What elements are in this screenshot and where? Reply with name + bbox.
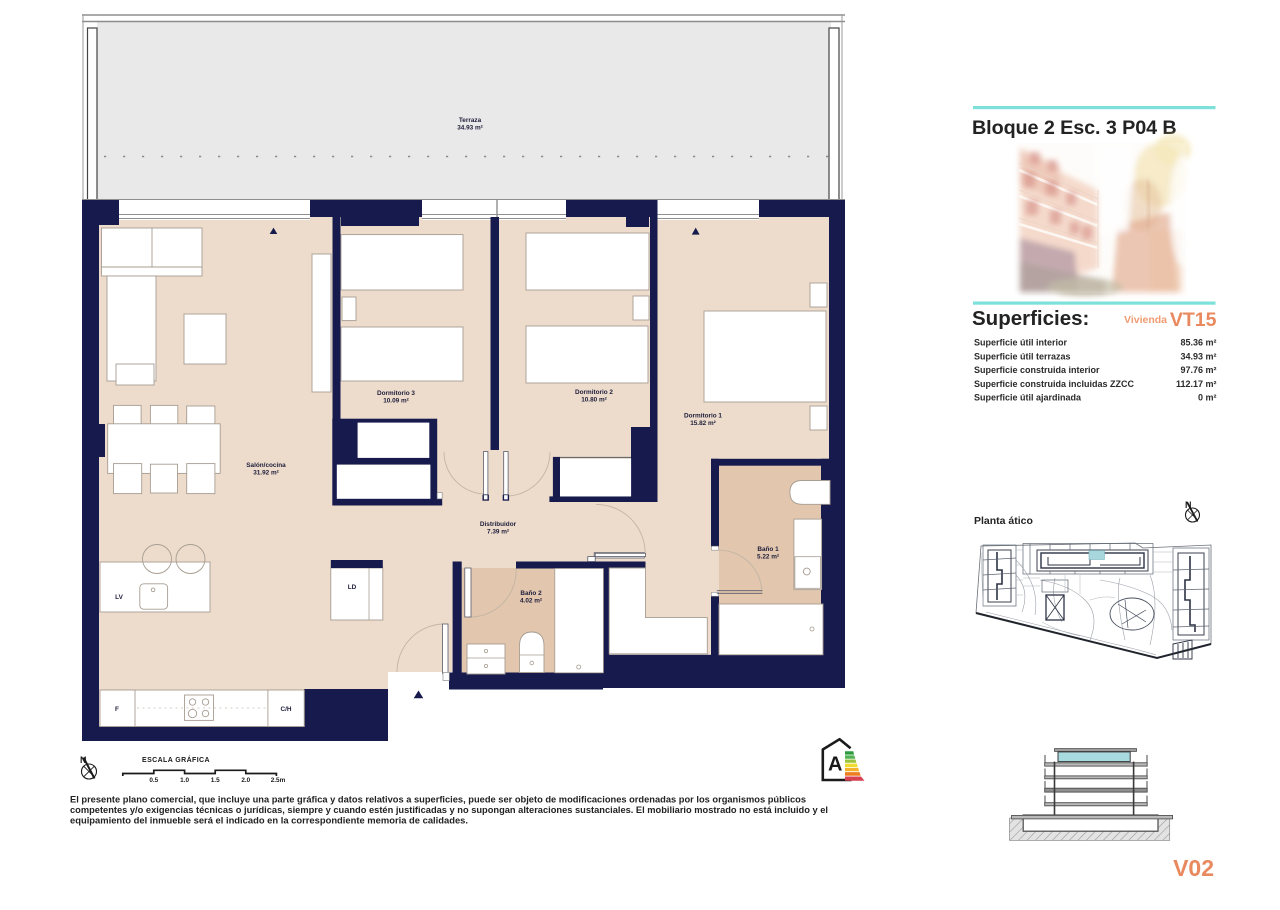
svg-text:15.82 m²: 15.82 m² xyxy=(690,420,716,427)
svg-text:C/H: C/H xyxy=(280,706,291,713)
svg-text:0.5: 0.5 xyxy=(149,777,158,784)
svg-text:2.0: 2.0 xyxy=(241,777,250,784)
svg-text:Dormitorio 2: Dormitorio 2 xyxy=(575,389,613,396)
svg-text:Distribuidor: Distribuidor xyxy=(480,521,517,528)
svg-text:LD: LD xyxy=(348,584,357,591)
svg-text:Planta ático: Planta ático xyxy=(974,515,1033,527)
svg-text:31.92 m²: 31.92 m² xyxy=(253,470,279,477)
svg-text:2.5m: 2.5m xyxy=(271,777,286,784)
svg-text:Dormitorio 3: Dormitorio 3 xyxy=(377,390,415,397)
svg-text:Baño 1: Baño 1 xyxy=(757,546,779,553)
svg-text:1.0: 1.0 xyxy=(180,777,189,784)
svg-text:34.93 m²: 34.93 m² xyxy=(1180,351,1216,361)
svg-text:0 m²: 0 m² xyxy=(1198,393,1217,403)
svg-text:Salón/cocina: Salón/cocina xyxy=(246,462,286,469)
svg-text:4.02 m²: 4.02 m² xyxy=(520,598,542,605)
svg-text:Dormitorio 1: Dormitorio 1 xyxy=(684,413,722,420)
svg-text:1.5: 1.5 xyxy=(211,777,220,784)
svg-text:Baño 2: Baño 2 xyxy=(520,590,542,597)
svg-text:Vivienda: Vivienda xyxy=(1124,314,1167,326)
svg-text:10.09 m²: 10.09 m² xyxy=(383,398,409,405)
svg-text:equipamiento del inmueble será: equipamiento del inmueble será el indica… xyxy=(70,816,468,826)
svg-text:97.76 m²: 97.76 m² xyxy=(1180,365,1216,375)
svg-text:A: A xyxy=(828,754,842,776)
svg-text:Superficie útil terrazas: Superficie útil terrazas xyxy=(974,351,1071,361)
svg-text:Superficies:: Superficies: xyxy=(972,307,1089,330)
svg-text:VT15: VT15 xyxy=(1170,309,1217,331)
svg-text:competentes y/o exigencias téc: competentes y/o exigencias técnicas o ju… xyxy=(70,805,828,815)
svg-text:Superficie construida interior: Superficie construida interior xyxy=(974,365,1100,375)
svg-text:El presente plano comercial, q: El presente plano comercial, que incluye… xyxy=(70,795,806,805)
svg-text:5.22 m²: 5.22 m² xyxy=(757,554,779,561)
svg-text:Superficie útil ajardinada: Superficie útil ajardinada xyxy=(974,393,1082,403)
svg-text:Bloque 2 Esc. 3 P04 B: Bloque 2 Esc. 3 P04 B xyxy=(972,117,1177,139)
svg-text:34.93 m²: 34.93 m² xyxy=(457,125,483,132)
svg-text:Superficie útil interior: Superficie útil interior xyxy=(974,338,1068,348)
svg-text:Terraza: Terraza xyxy=(459,117,482,124)
svg-text:7.39 m²: 7.39 m² xyxy=(487,529,509,536)
svg-text:ESCALA GRÁFICA: ESCALA GRÁFICA xyxy=(142,755,210,764)
svg-text:F: F xyxy=(115,706,119,713)
svg-text:112.17 m²: 112.17 m² xyxy=(1176,379,1217,389)
svg-text:85.36 m²: 85.36 m² xyxy=(1180,338,1216,348)
svg-text:10.80 m²: 10.80 m² xyxy=(581,397,607,404)
svg-text:Superficie construida incluida: Superficie construida incluidas ZZCC xyxy=(974,379,1135,389)
svg-text:V02: V02 xyxy=(1173,855,1214,881)
svg-text:LV: LV xyxy=(115,594,123,601)
